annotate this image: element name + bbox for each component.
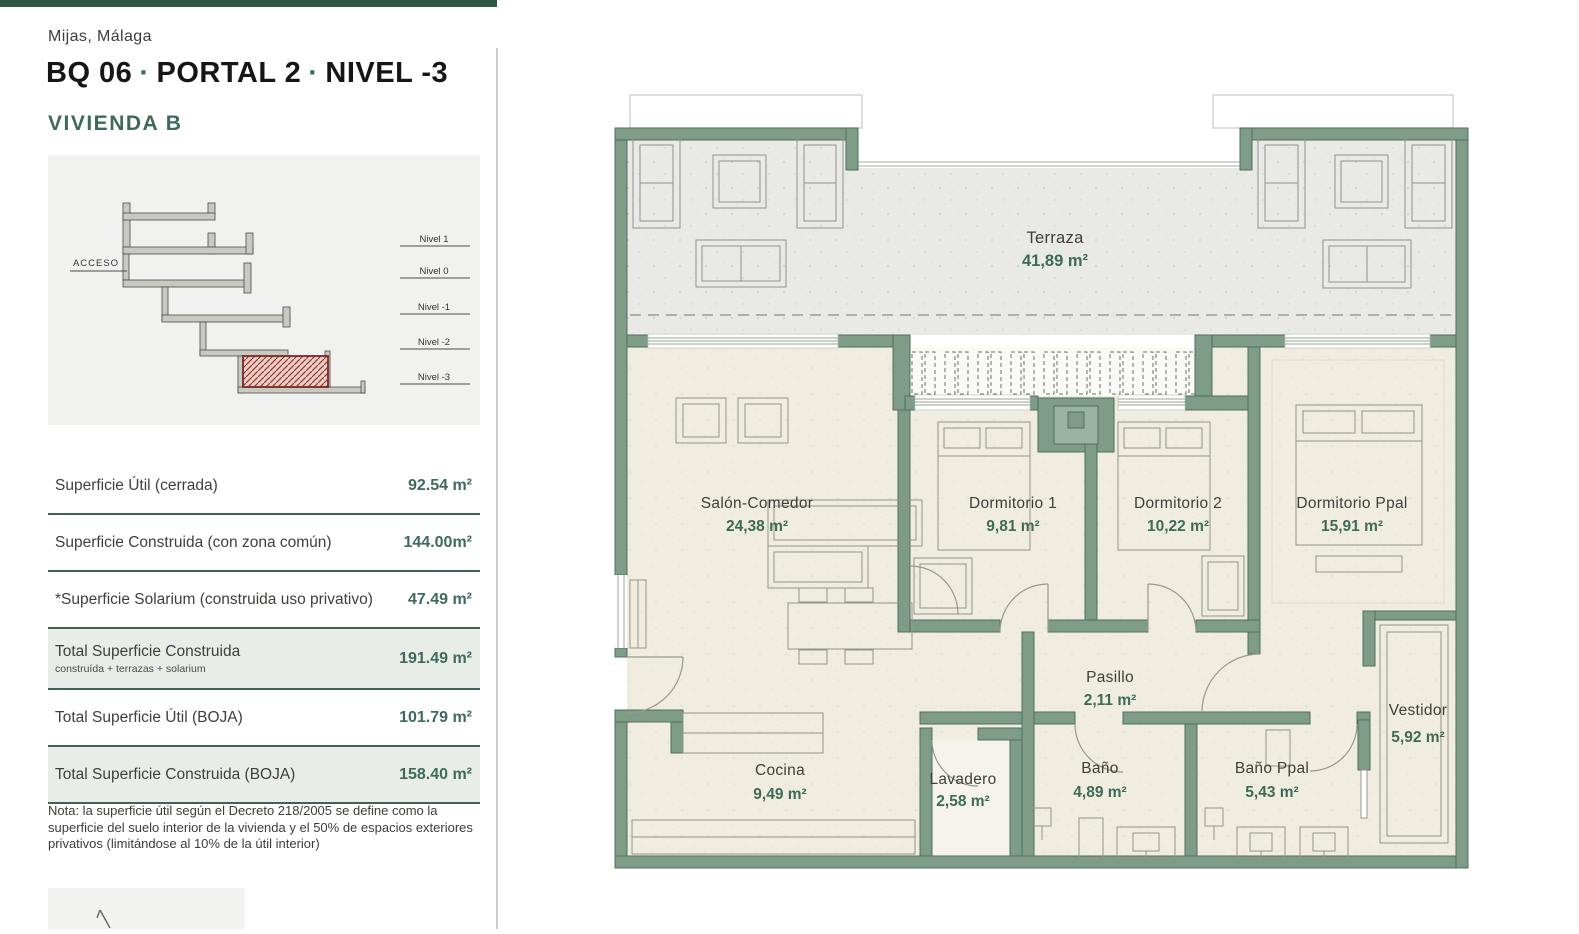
note-text: Nota: la superficie útil según el Decret… (48, 803, 496, 853)
section-diagram: ACCESO Nivel 1 Nivel 0 Nivel -1 Nivel -2… (48, 155, 480, 425)
column-divider (496, 48, 498, 929)
svg-text:Terraza: Terraza (1026, 229, 1084, 247)
north-arrow-box (48, 888, 245, 929)
row-label: *Superficie Solarium (construida uso pri… (55, 591, 373, 609)
table-row: Superficie Construida (con zona común) 1… (48, 515, 480, 572)
svg-text:2,11 m²: 2,11 m² (1084, 692, 1137, 709)
location-label: Mijas, Málaga (48, 28, 152, 46)
svg-text:9,81 m²: 9,81 m² (986, 518, 1039, 535)
row-value: 101.79 m² (399, 709, 472, 727)
salon-window (615, 575, 627, 648)
svg-text:Dormitorio 2: Dormitorio 2 (1134, 495, 1222, 512)
title-dot: · (308, 57, 318, 89)
svg-text:9,49 m²: 9,49 m² (753, 786, 806, 803)
page-title: BQ 06·PORTAL 2·NIVEL -3 (46, 57, 448, 90)
svg-text:Cocina: Cocina (755, 762, 805, 779)
svg-text:5,43 m²: 5,43 m² (1245, 784, 1298, 801)
svg-text:Pasillo: Pasillo (1086, 669, 1134, 686)
level-label--3: Nivel -3 (418, 372, 450, 383)
table-row: Total Superficie Construida construída +… (48, 629, 480, 690)
svg-text:Vestidor: Vestidor (1389, 702, 1447, 719)
svg-text:Salón-Comedor: Salón-Comedor (701, 495, 813, 512)
row-value: 158.40 m² (399, 766, 472, 784)
top-accent-bar (0, 0, 497, 7)
row-label-main: Total Superficie Construida (55, 643, 240, 661)
title-dot: · (139, 57, 149, 89)
nivel-3-highlight (243, 356, 328, 387)
unit-title: VIVIENDA B (48, 112, 182, 136)
row-value: 47.49 m² (408, 591, 472, 609)
svg-text:5,92 m²: 5,92 m² (1391, 729, 1444, 746)
row-value: 92.54 m² (408, 477, 472, 495)
level-label--1: Nivel -1 (418, 302, 450, 313)
title-level: NIVEL -3 (325, 57, 448, 89)
table-row: Superficie Útil (cerrada) 92.54 m² (48, 458, 480, 515)
floor-plan: Terraza 41,89 m² Salón-Comedor 24,38 m² … (590, 85, 1510, 890)
svg-text:Dormitorio 1: Dormitorio 1 (969, 495, 1057, 512)
row-label: Total Superficie Construida construída +… (55, 643, 240, 675)
svg-text:24,38 m²: 24,38 m² (726, 518, 788, 535)
svg-text:Baño Ppal: Baño Ppal (1235, 760, 1309, 777)
level-labels: Nivel 1 Nivel 0 Nivel -1 Nivel -2 Nivel … (418, 234, 450, 383)
row-label: Superficie Construida (con zona común) (55, 534, 332, 552)
svg-text:Baño: Baño (1081, 760, 1118, 777)
table-row: Total Superficie Construida (BOJA) 158.4… (48, 747, 480, 804)
title-block: BQ 06 (46, 57, 132, 89)
level-label-1: Nivel 1 (419, 234, 448, 245)
svg-text:4,89 m²: 4,89 m² (1073, 784, 1126, 801)
svg-text:Lavadero: Lavadero (929, 771, 996, 788)
table-row: Total Superficie Útil (BOJA) 101.79 m² (48, 690, 480, 747)
areas-table: Superficie Útil (cerrada) 92.54 m² Super… (48, 458, 480, 804)
svg-text:15,91 m²: 15,91 m² (1321, 518, 1383, 535)
level-label-0: Nivel 0 (419, 266, 448, 277)
roof-outline (630, 95, 1453, 128)
north-arrow-icon (97, 910, 110, 928)
acceso-label: ACCESO (73, 258, 119, 269)
svg-text:Dormitorio Ppal: Dormitorio Ppal (1296, 495, 1407, 512)
row-value: 144.00m² (404, 534, 473, 552)
plan-sheet: Mijas, Málaga BQ 06·PORTAL 2·NIVEL -3 VI… (0, 0, 1579, 929)
row-label: Superficie Útil (cerrada) (55, 477, 218, 495)
row-label-sub: construída + terrazas + solarium (55, 663, 240, 675)
title-portal: PORTAL 2 (157, 57, 302, 89)
svg-text:10,22 m²: 10,22 m² (1147, 518, 1209, 535)
vestidor-door-leaf (1361, 770, 1367, 818)
porch-floor (905, 347, 1195, 396)
terrace-recess-edge (858, 162, 1242, 166)
level-label--2: Nivel -2 (418, 337, 450, 348)
svg-text:2,58 m²: 2,58 m² (936, 793, 989, 810)
table-row: *Superficie Solarium (construida uso pri… (48, 572, 480, 629)
row-value: 191.49 m² (399, 650, 472, 668)
row-label: Total Superficie Útil (BOJA) (55, 709, 243, 727)
row-label: Total Superficie Construida (BOJA) (55, 766, 295, 784)
svg-text:41,89 m²: 41,89 m² (1022, 252, 1089, 270)
